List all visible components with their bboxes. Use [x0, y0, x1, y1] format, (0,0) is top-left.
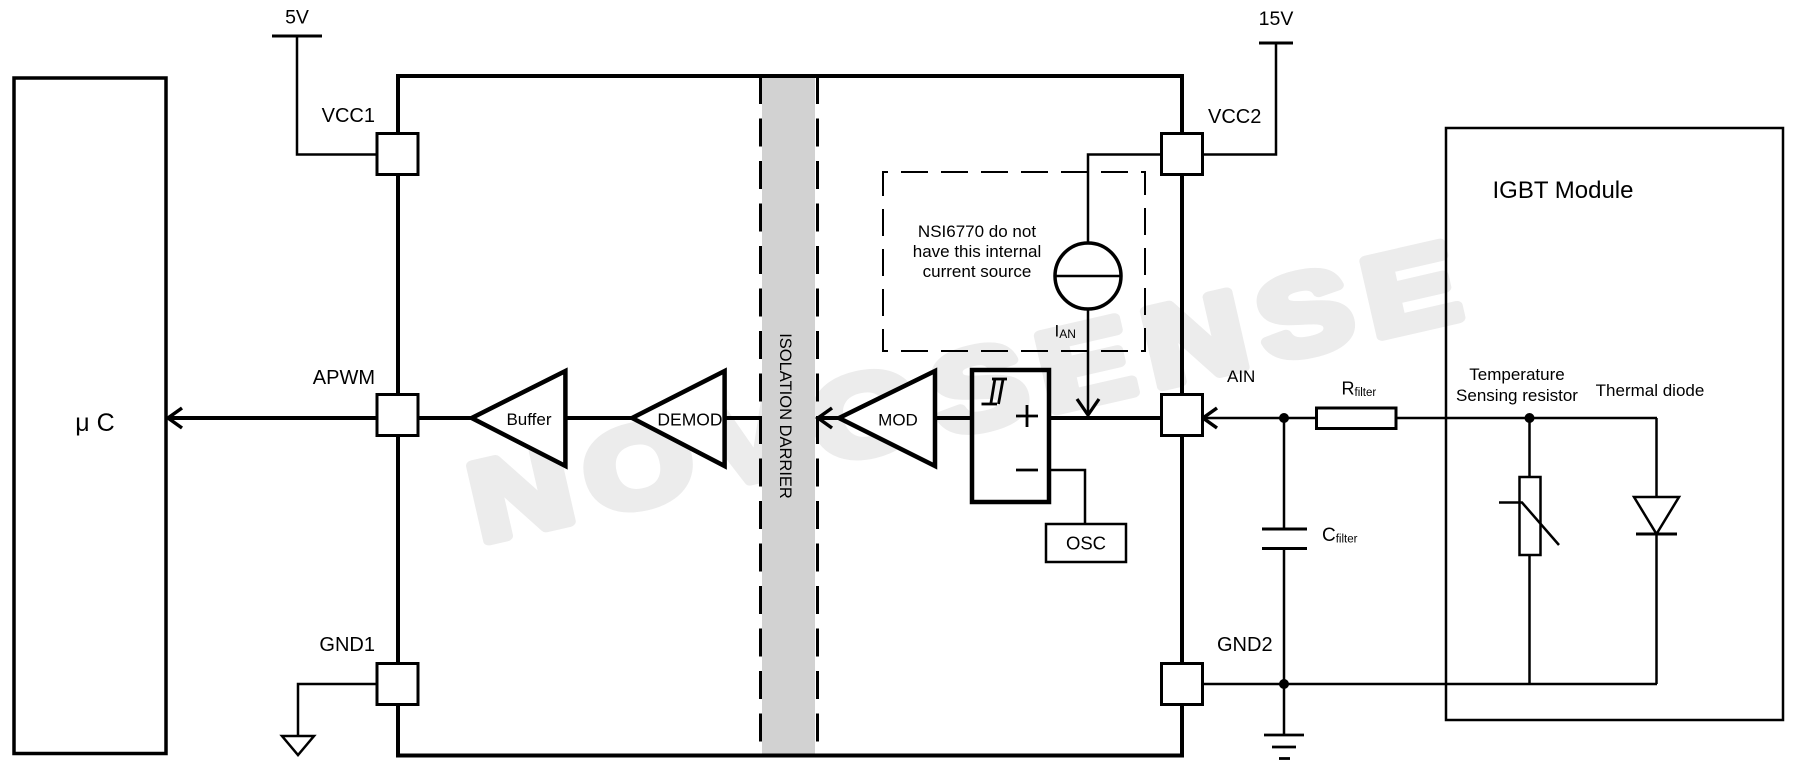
svg-text:GND2: GND2: [1217, 634, 1273, 656]
svg-text:15V: 15V: [1259, 8, 1294, 30]
svg-text:NSI6770 do not: NSI6770 do not: [918, 222, 1036, 241]
svg-text:Buffer: Buffer: [506, 410, 551, 429]
svg-text:MOD: MOD: [878, 411, 918, 430]
svg-text:AIN: AIN: [1227, 367, 1255, 386]
svg-text:OSC: OSC: [1066, 533, 1106, 554]
svg-text:μ C: μ C: [75, 409, 114, 437]
svg-text:Thermal diode: Thermal diode: [1596, 381, 1705, 400]
svg-text:DEMOD: DEMOD: [657, 410, 722, 430]
svg-text:current source: current source: [923, 262, 1032, 281]
svg-text:Temperature: Temperature: [1469, 365, 1564, 384]
svg-text:VCC2: VCC2: [1208, 106, 1261, 128]
svg-text:have this internal: have this internal: [913, 242, 1042, 261]
svg-text:APWM: APWM: [313, 367, 375, 389]
svg-text:IGBT Module: IGBT Module: [1493, 177, 1634, 204]
svg-text:GND1: GND1: [319, 634, 375, 656]
svg-text:Sensing resistor: Sensing resistor: [1456, 386, 1578, 405]
svg-text:ISOLATION DARRIER: ISOLATION DARRIER: [776, 333, 794, 499]
svg-text:5V: 5V: [285, 7, 309, 29]
svg-text:VCC1: VCC1: [322, 105, 375, 127]
